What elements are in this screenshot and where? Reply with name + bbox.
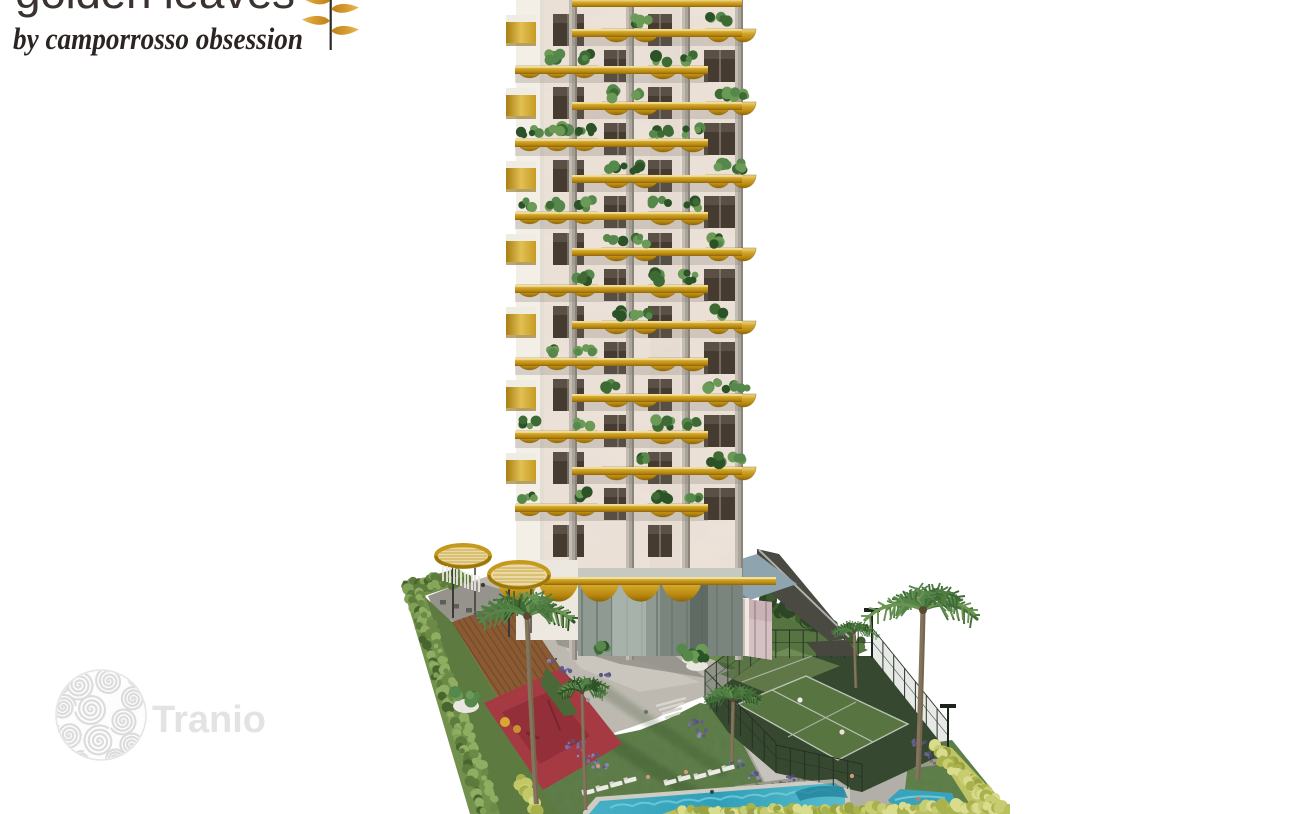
svg-text:by camporrosso obsession: by camporrosso obsession bbox=[13, 21, 303, 56]
svg-text:golden leaves: golden leaves bbox=[15, 0, 297, 18]
svg-text:Tranio: Tranio bbox=[152, 699, 266, 741]
